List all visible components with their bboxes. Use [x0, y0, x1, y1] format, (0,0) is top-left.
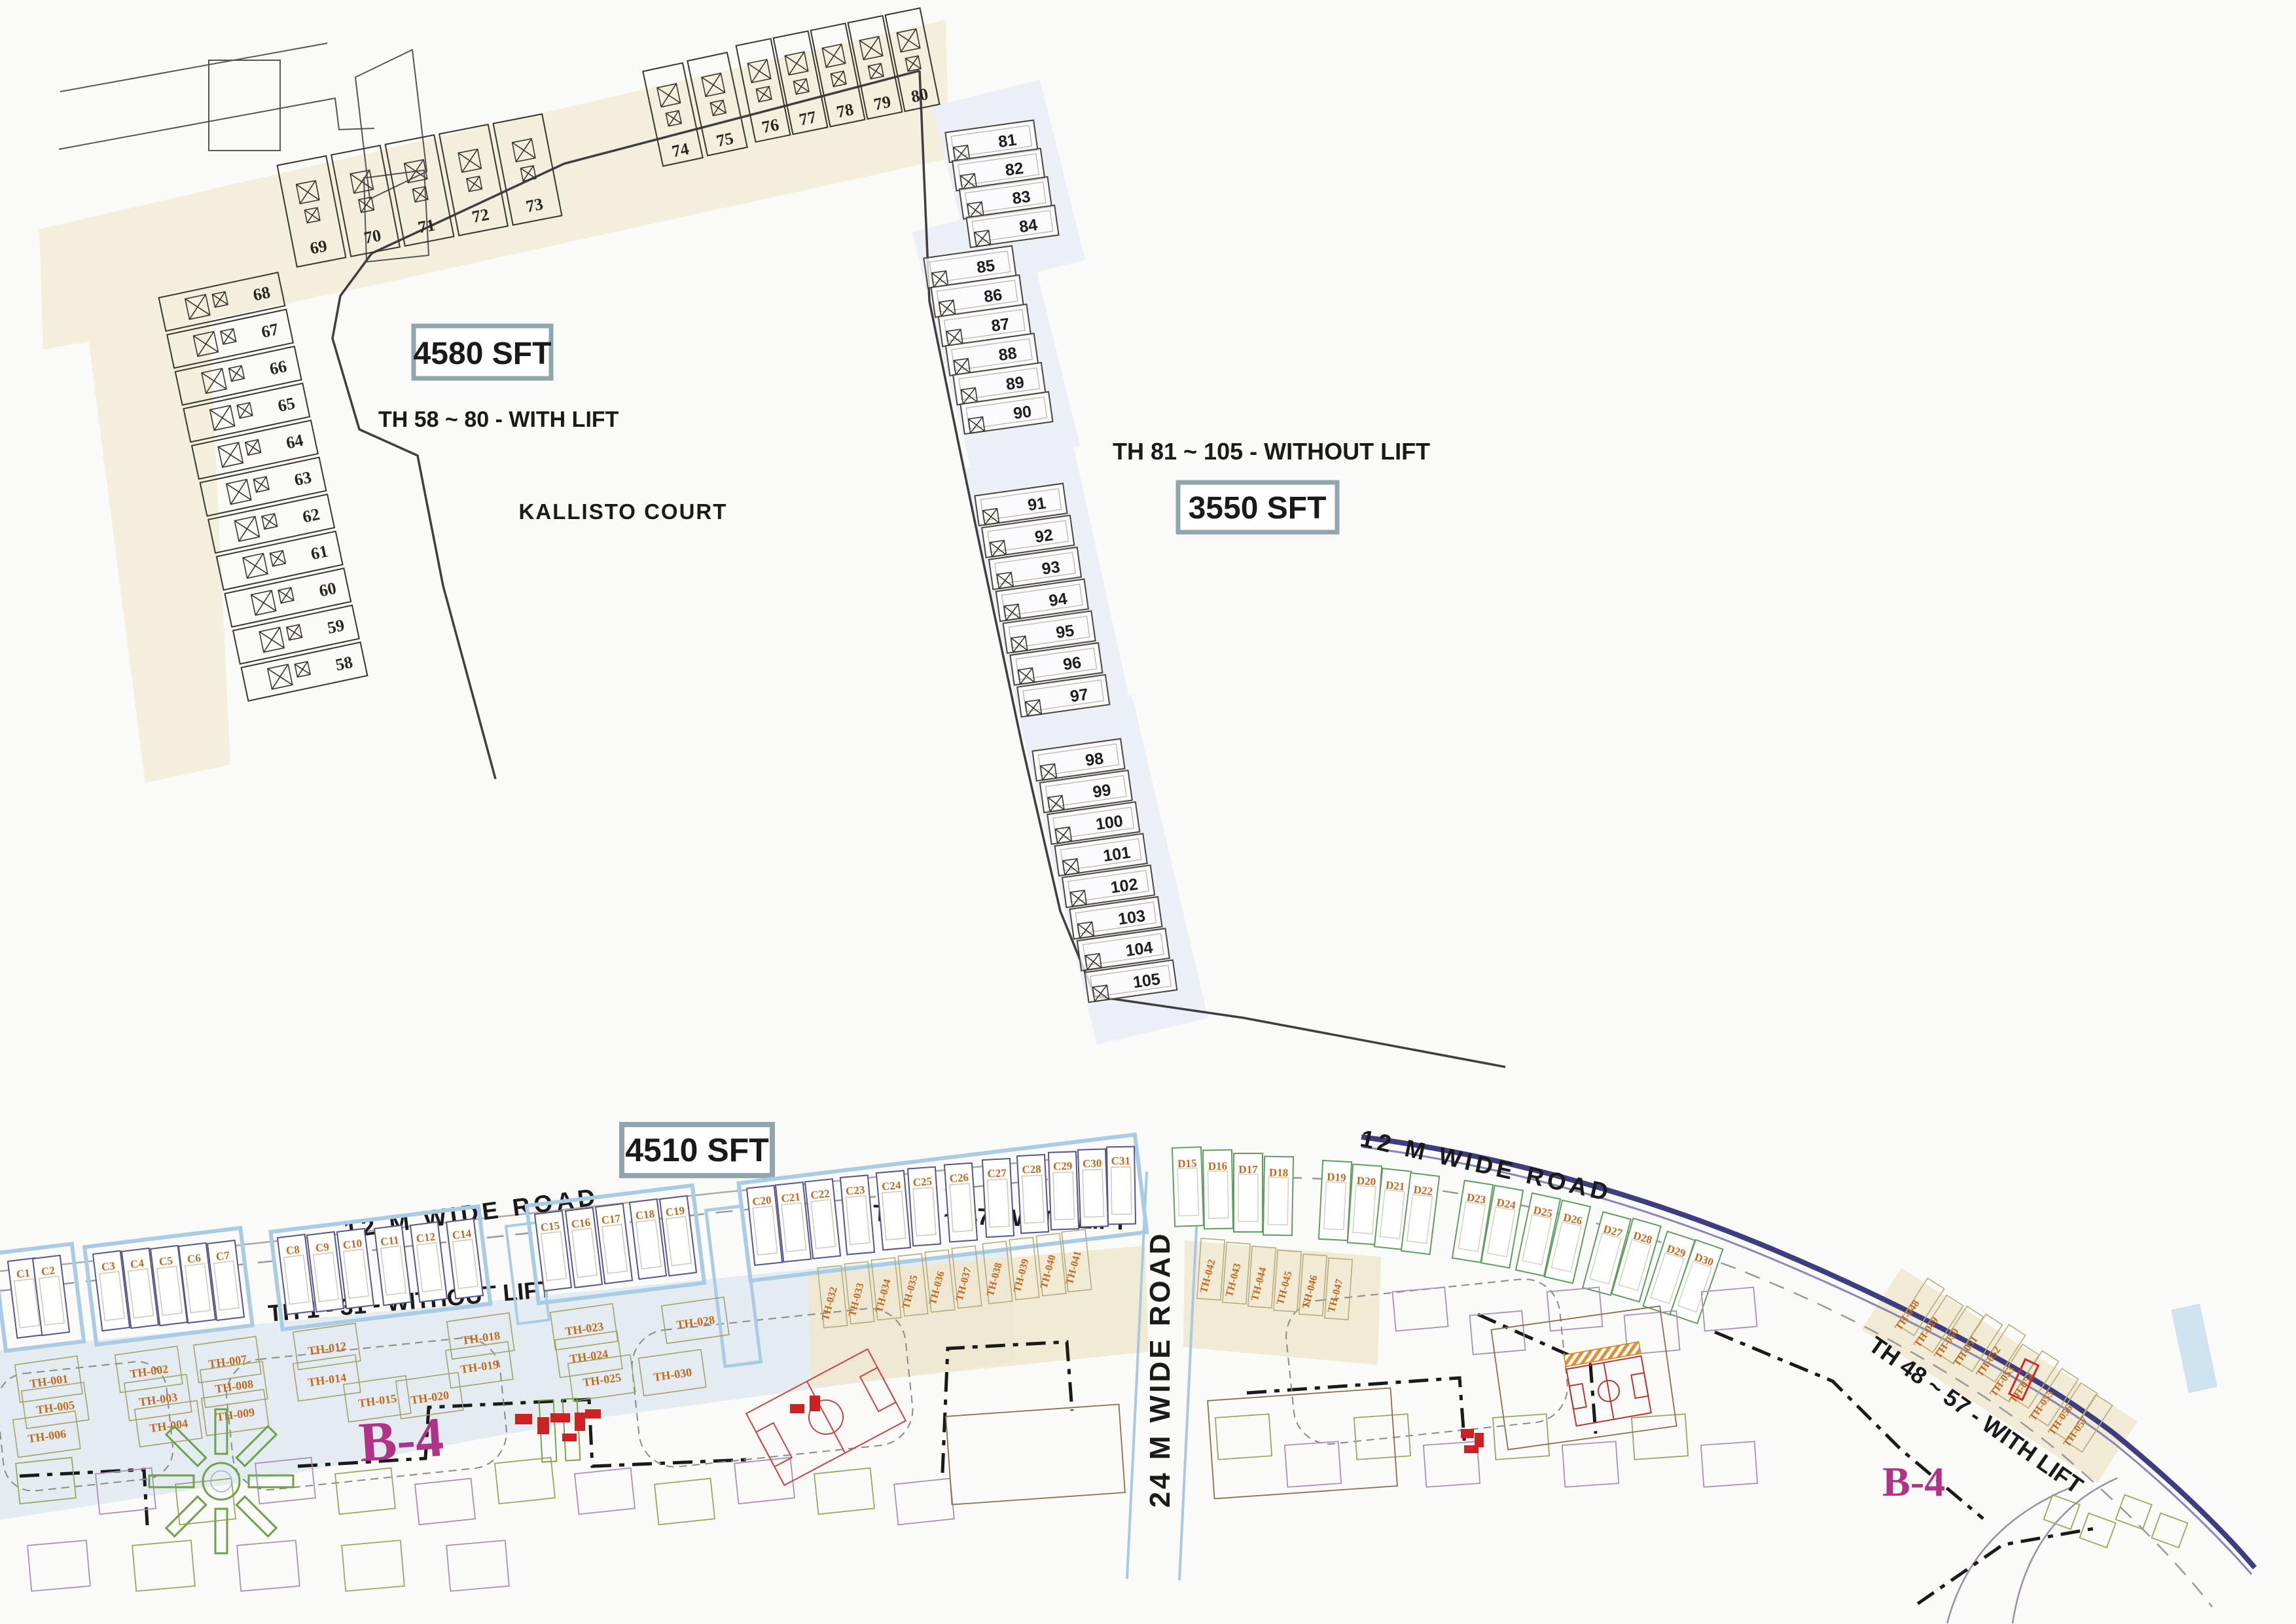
- unit-number: 90: [1012, 403, 1032, 424]
- apartment-outline: [1562, 1441, 1619, 1487]
- plot-label: D20: [1356, 1174, 1376, 1188]
- red-building: [575, 1413, 585, 1431]
- plot-C31: C31: [1107, 1147, 1136, 1225]
- red-building: [790, 1404, 804, 1413]
- unit-number: 61: [309, 541, 329, 564]
- lane-right-2: [1947, 1487, 2072, 1623]
- plot-C24: C24: [876, 1170, 910, 1250]
- goal-box: [1570, 1384, 1587, 1409]
- school-block: [946, 1404, 1125, 1504]
- plot-label: C3: [101, 1259, 116, 1273]
- apartment-outline: [1547, 1288, 1603, 1331]
- plot-D18: D18: [1263, 1157, 1293, 1236]
- range-81-105-label: TH 81 ~ 105 - WITHOUT LIFT: [1113, 438, 1430, 465]
- plot-label: C23: [845, 1183, 865, 1197]
- site-plan-canvas: 4580 SFT TH 58 ~ 80 - WITH LIFT KALLISTO…: [0, 0, 2296, 1624]
- unit-number: 104: [1124, 938, 1154, 960]
- plot-label: C17: [601, 1212, 622, 1227]
- apartment-outline: [655, 1479, 715, 1525]
- plot-label: C25: [912, 1175, 933, 1189]
- plot-C23: C23: [840, 1175, 874, 1254]
- apartment-outline: [1702, 1288, 1757, 1331]
- plot-label: C5: [158, 1254, 173, 1268]
- apartment-outline: [335, 1468, 395, 1515]
- plot-label: D18: [1269, 1166, 1289, 1180]
- plot-label: C10: [342, 1237, 363, 1252]
- unit-number: 59: [325, 615, 346, 638]
- block-b4-right-label: B-4: [1882, 1458, 1945, 1505]
- unit-number: 96: [1062, 653, 1082, 674]
- unit-number: 100: [1094, 812, 1124, 834]
- apartment-outline: [1393, 1288, 1448, 1331]
- plot-label: D16: [1208, 1160, 1228, 1173]
- plot-label: D22: [1413, 1183, 1433, 1198]
- apartment-outline: [1285, 1441, 1341, 1487]
- unit-number: 97: [1069, 685, 1089, 706]
- road-24m-right-edge: [1179, 1174, 1199, 1580]
- apartment-outline: [1632, 1414, 1688, 1460]
- plot-C29: C29: [1049, 1151, 1079, 1229]
- plot-D19: D19: [1319, 1161, 1352, 1240]
- plot-label: C12: [416, 1231, 436, 1245]
- unit-number: 71: [416, 215, 437, 237]
- unit-number: 92: [1033, 526, 1054, 547]
- block-b4-left-label: B-4: [357, 1405, 445, 1474]
- apartment-outline: [342, 1540, 404, 1591]
- unit-number: 73: [524, 194, 545, 216]
- unit-number: 103: [1117, 907, 1146, 929]
- plot-label: C11: [380, 1234, 399, 1248]
- cream-band-top: [39, 20, 949, 350]
- plot-label: C28: [1022, 1163, 1041, 1176]
- plot-label: C15: [540, 1219, 560, 1234]
- plot-label: C24: [881, 1179, 901, 1193]
- road-24m-label: 24 M WIDE ROAD: [1144, 1231, 1176, 1508]
- plot-label: C9: [315, 1240, 330, 1254]
- apartment-outline: [734, 1458, 795, 1504]
- unit-number: 67: [260, 319, 280, 342]
- plot-C28: C28: [1017, 1155, 1049, 1233]
- school-block: [1208, 1388, 1397, 1498]
- unit-number: 82: [1004, 159, 1024, 180]
- football-pitch: [1564, 1342, 1651, 1426]
- red-building: [1464, 1445, 1479, 1453]
- unit-number: 63: [293, 467, 313, 490]
- unit-number: 86: [983, 285, 1003, 306]
- unit-number: 98: [1084, 749, 1105, 770]
- unit-number: 88: [997, 344, 1018, 365]
- light-blue-patch: [2171, 1304, 2217, 1394]
- apartment-outline: [575, 1468, 635, 1515]
- unit-number: 58: [334, 653, 354, 675]
- apartment-outline: [446, 1540, 509, 1591]
- plot-label: C16: [571, 1216, 591, 1231]
- plot-label: C1: [16, 1267, 31, 1280]
- unit-number: 95: [1055, 621, 1076, 642]
- red-building: [537, 1417, 549, 1434]
- unit-number: 102: [1109, 875, 1139, 897]
- plot-label: D17: [1238, 1163, 1258, 1176]
- apartment-outline: [1215, 1414, 1272, 1460]
- plot-label: C6: [187, 1252, 202, 1265]
- apartment-outline: [814, 1468, 874, 1515]
- unit-number: 83: [1011, 187, 1031, 208]
- plot-D15: D15: [1172, 1147, 1204, 1226]
- cream-band-left: [85, 296, 230, 783]
- court-name-label: KALLISTO COURT: [519, 499, 728, 524]
- plot-label: C20: [752, 1194, 772, 1208]
- area-4510-label: 4510 SFT: [625, 1132, 769, 1168]
- plot-C27: C27: [982, 1159, 1014, 1237]
- unit-number: 94: [1048, 590, 1069, 611]
- plot-D16: D16: [1203, 1150, 1233, 1229]
- apartment-outline: [1354, 1414, 1410, 1460]
- range-58-80-label: TH 58 ~ 80 - WITH LIFT: [378, 407, 619, 432]
- unit-number: 101: [1102, 844, 1132, 866]
- plot-label: C7: [215, 1249, 230, 1263]
- red-building: [515, 1414, 532, 1424]
- plot-label: C30: [1083, 1157, 1102, 1170]
- plot-label: C18: [635, 1208, 655, 1222]
- unit-number: 93: [1041, 558, 1061, 579]
- apartment-outline: [132, 1540, 195, 1591]
- plot-label: C27: [987, 1166, 1007, 1180]
- unit-number: 89: [1005, 373, 1025, 394]
- unit-number: 70: [363, 226, 383, 247]
- red-building: [1475, 1433, 1484, 1447]
- red-building: [585, 1409, 601, 1418]
- plot-label: C8: [285, 1243, 300, 1257]
- plot-label: C29: [1053, 1160, 1073, 1173]
- area-3550-label: 3550 SFT: [1189, 491, 1327, 526]
- plot-label: C26: [949, 1171, 969, 1185]
- plot-label: C14: [452, 1227, 473, 1242]
- plot-label: C2: [41, 1264, 56, 1278]
- unit-number: 60: [317, 579, 338, 601]
- red-building: [550, 1413, 570, 1422]
- plot-C25: C25: [908, 1167, 941, 1246]
- unit-number: 85: [975, 257, 996, 278]
- goal-box: [1631, 1373, 1648, 1398]
- apartment-outline: [894, 1479, 954, 1525]
- hedge-strip: [215, 1509, 227, 1553]
- plot-C30: C30: [1078, 1149, 1108, 1227]
- outbuilding-square: [209, 60, 280, 151]
- unit-number: 62: [301, 505, 321, 527]
- red-building: [1461, 1429, 1474, 1438]
- unit-number: 65: [276, 393, 296, 416]
- unit-number: 69: [308, 236, 329, 258]
- plot-label: C4: [130, 1257, 145, 1271]
- unit-number: 64: [284, 431, 304, 453]
- unit-number: 105: [1132, 970, 1161, 992]
- unit-number: 91: [1026, 494, 1047, 515]
- apartment-outline: [237, 1540, 300, 1591]
- red-building: [562, 1434, 577, 1441]
- red-building: [810, 1396, 820, 1411]
- apartment-outline: [27, 1540, 90, 1591]
- unit-number: 72: [471, 205, 491, 226]
- plot-D17: D17: [1234, 1153, 1263, 1232]
- apartment-outline: [495, 1458, 555, 1504]
- plot-label: C22: [810, 1187, 831, 1202]
- hedge-strip: [166, 1496, 206, 1536]
- plot-label: C31: [1111, 1155, 1131, 1168]
- unit-number: 87: [990, 315, 1011, 336]
- apartment-outline: [1701, 1441, 1757, 1487]
- unit-number: 84: [1018, 216, 1039, 237]
- townhouse-unit-58: 58: [242, 642, 368, 701]
- unit-number: 99: [1092, 781, 1112, 802]
- apartment-outline: [415, 1479, 475, 1525]
- unit-number: 81: [997, 131, 1018, 152]
- apartment-outline: [2043, 1495, 2079, 1530]
- apartment-outline: [2151, 1513, 2187, 1548]
- apartment-outline: [2115, 1495, 2151, 1530]
- plot-label: D19: [1327, 1170, 1346, 1184]
- plot-label: C19: [665, 1204, 685, 1219]
- area-4580-label: 4580 SFT: [414, 336, 552, 371]
- plot-label: D21: [1385, 1179, 1405, 1193]
- apartment-outline: [2079, 1513, 2115, 1548]
- plot-label: D15: [1177, 1157, 1197, 1170]
- plot-C26: C26: [944, 1163, 977, 1242]
- unit-number: 66: [268, 357, 288, 379]
- plot-label: C21: [781, 1191, 801, 1205]
